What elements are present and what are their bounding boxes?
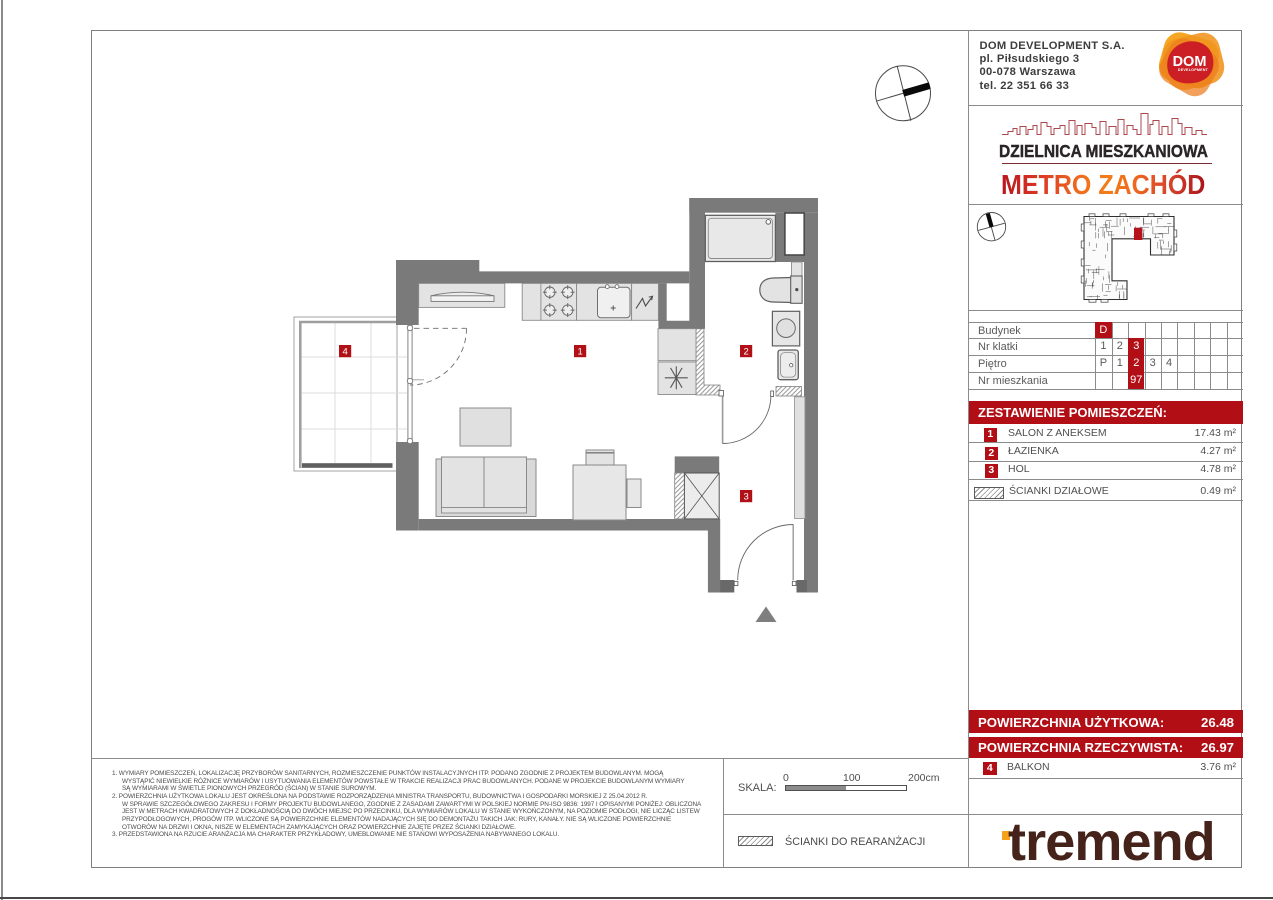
svg-text:4: 4 <box>342 347 347 358</box>
svg-text:3: 3 <box>743 492 748 503</box>
svg-text:DEVELOPMENT: DEVELOPMENT <box>1178 68 1209 72</box>
svg-text:2: 2 <box>743 347 748 358</box>
svg-text:1: 1 <box>577 347 582 358</box>
